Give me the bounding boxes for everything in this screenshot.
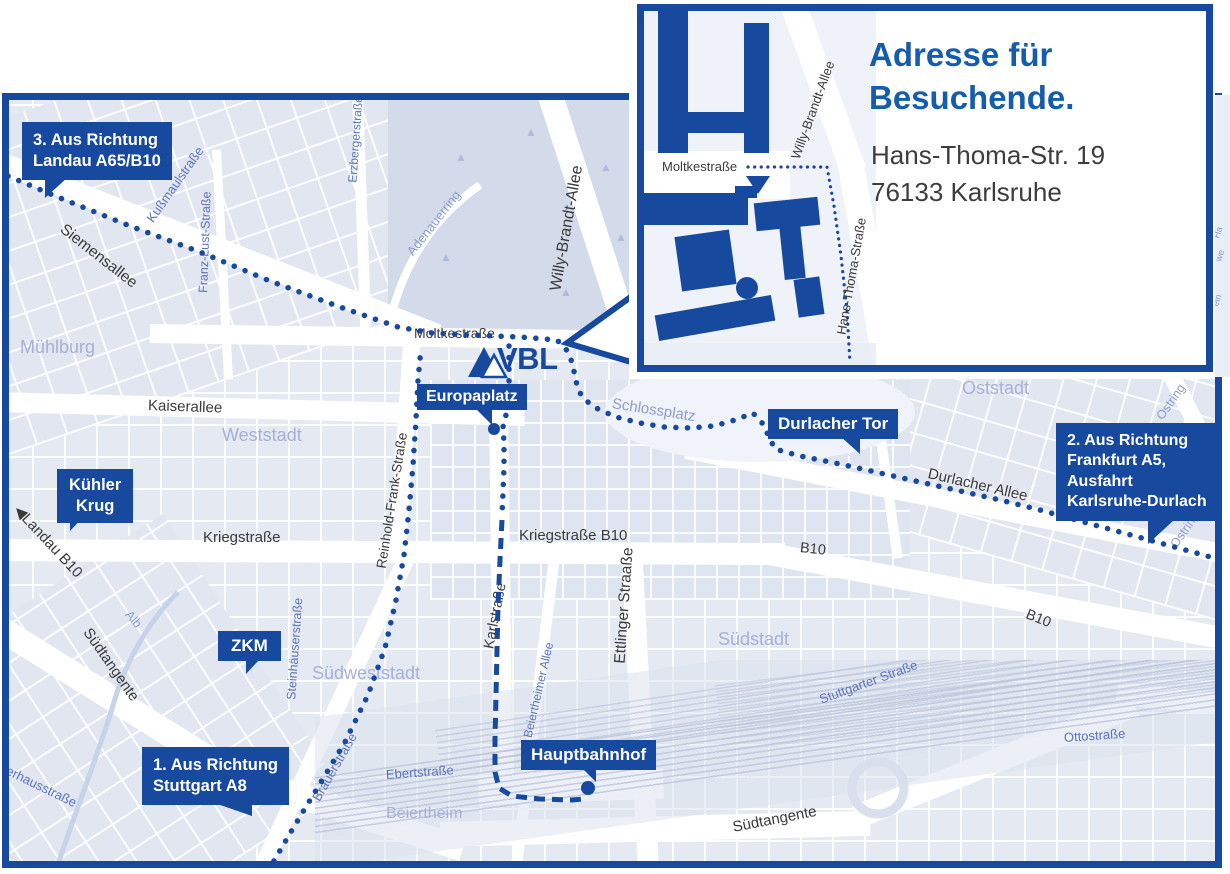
- badge-kuehler-krug: Kühler Krug: [57, 469, 133, 523]
- badge-zkm: ZKM: [218, 631, 281, 661]
- page: ▲ ▲ ▲ ▲ ▲ ▲: [0, 0, 1230, 874]
- badge-tail: [246, 660, 259, 674]
- edge-fragment-label: Ha: [1215, 226, 1224, 240]
- badge-direction-stuttgart: 1. Aus Richtung Stuttgart A8: [142, 747, 289, 805]
- badge-direction-frankfurt: 2. Aus Richtung Frankfurt A5, Ausfahrt K…: [1056, 423, 1218, 521]
- badge-tail: [70, 514, 86, 531]
- hauptbahnhof-dot: [581, 781, 595, 795]
- badge-tail: [475, 408, 492, 425]
- entrance-arrow-icon: [746, 176, 770, 194]
- edge-fragment-label: we: [1215, 249, 1226, 263]
- badge-direction-landau: 3. Aus Richtung Landau A65/B10: [22, 122, 172, 180]
- inset-heading: Adresse für Besuchende.: [869, 33, 1074, 119]
- map-edge-sliver: Ha we ein: [1215, 95, 1230, 377]
- badge-europaplatz: Europaplatz: [417, 384, 527, 410]
- badge-tail: [206, 800, 252, 816]
- inset-box: Moltkestraße Willy-Brandt-Allee Hans-Tho…: [637, 4, 1213, 372]
- inset-route-dotted: [748, 167, 850, 363]
- badge-hauptbahnhof: Hauptbahnhof: [521, 740, 656, 770]
- badge-tail: [45, 178, 67, 198]
- route-stuttgart-dotted: [268, 348, 421, 868]
- inset-minimap: Moltkestraße Willy-Brandt-Allee Hans-Tho…: [644, 11, 876, 365]
- badge-tail: [840, 436, 860, 454]
- badge-tail: [1148, 520, 1174, 544]
- inset-street-label-moltkestrasse: Moltkestraße: [662, 159, 737, 174]
- badge-durlacher-tor: Durlacher Tor: [768, 409, 898, 439]
- edge-fragment-label: ein: [1215, 293, 1223, 308]
- badge-tail: [583, 769, 596, 782]
- inset-panel: Moltkestraße Willy-Brandt-Allee Hans-Tho…: [629, 0, 1215, 379]
- inset-address: Hans-Thoma-Str. 19 76133 Karlsruhe: [871, 137, 1105, 211]
